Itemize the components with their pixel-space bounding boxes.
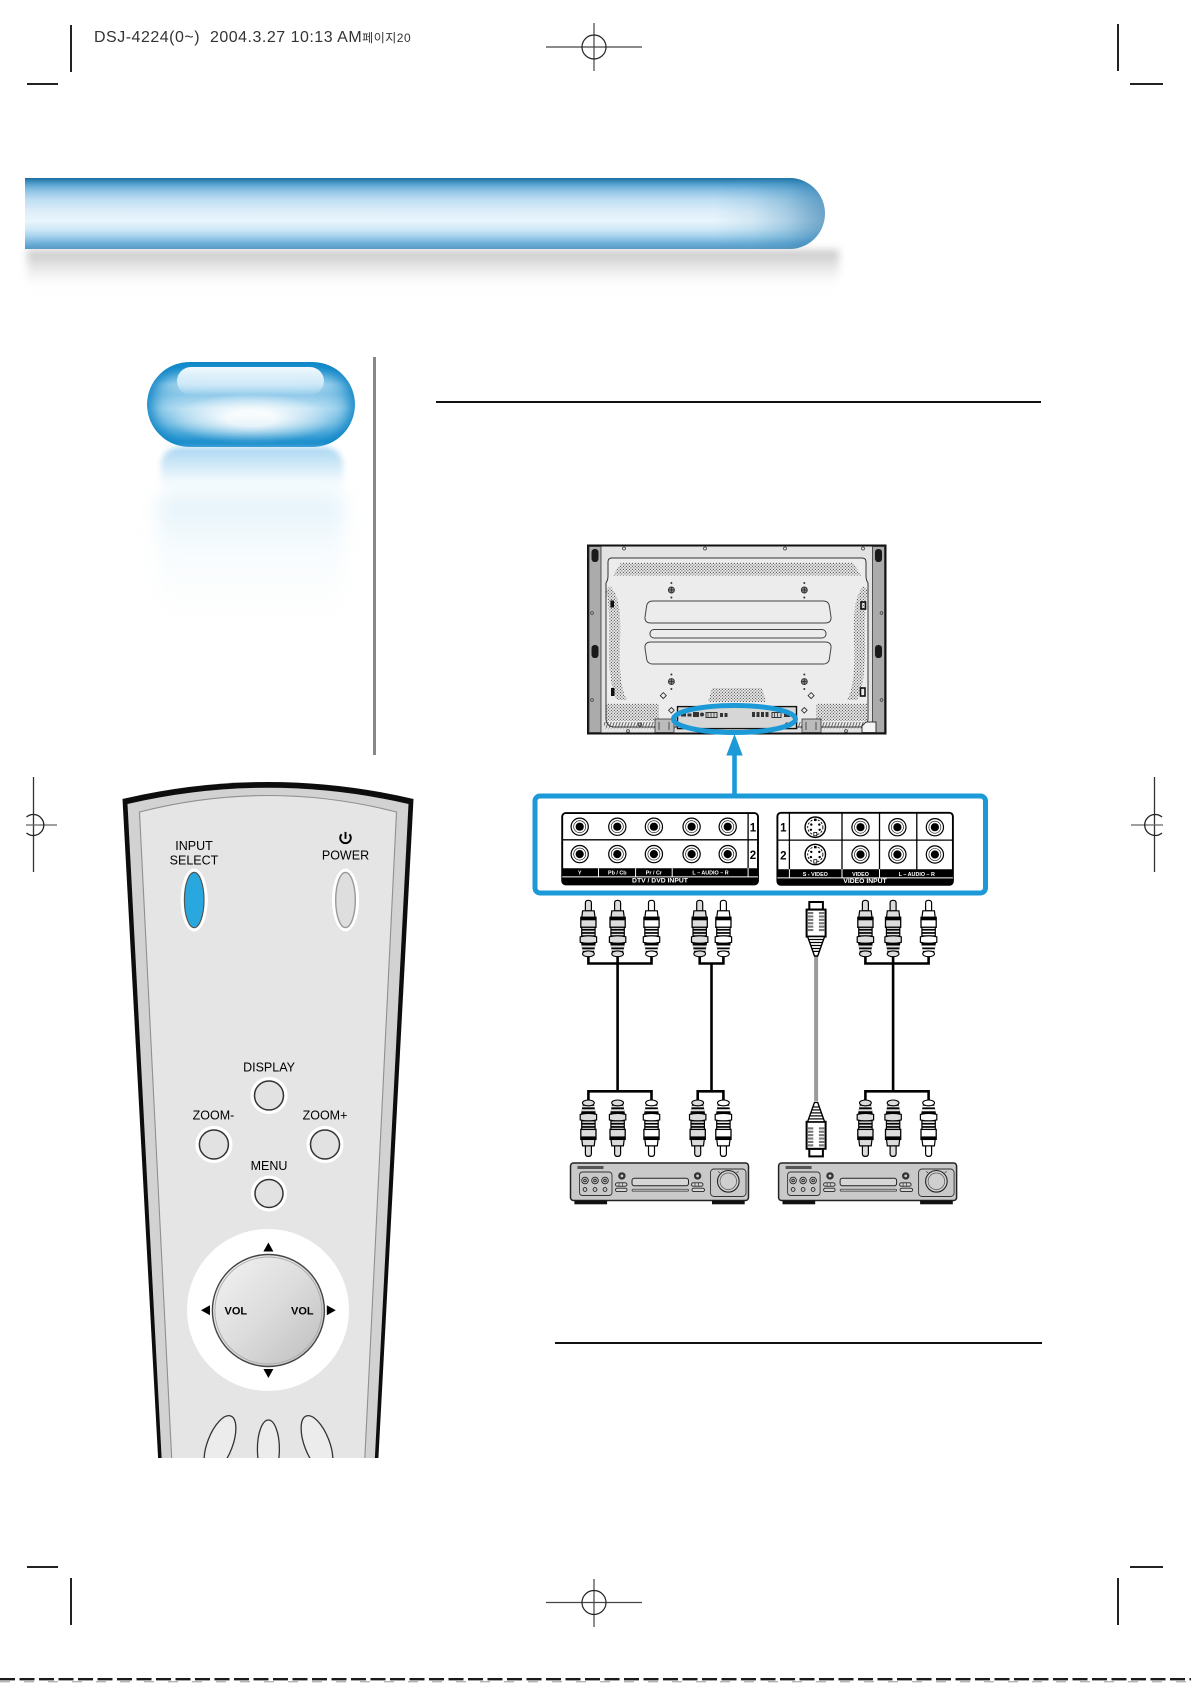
svg-text:Pr / Cr: Pr / Cr xyxy=(646,871,663,877)
svg-text:1: 1 xyxy=(750,823,757,835)
svg-text:VIDEO: VIDEO xyxy=(852,872,869,878)
svg-text:VOL: VOL xyxy=(291,1306,314,1318)
svg-text:VOL: VOL xyxy=(224,1306,247,1318)
svg-text:2: 2 xyxy=(750,850,756,862)
svg-text:2: 2 xyxy=(780,851,786,863)
svg-text:L – AUDIO – R: L – AUDIO – R xyxy=(692,871,728,877)
svg-text:ZOOM-: ZOOM- xyxy=(193,1109,235,1123)
svg-text:SELECT: SELECT xyxy=(170,854,219,868)
svg-text:Pb / Cb: Pb / Cb xyxy=(608,871,627,877)
svg-text:MENU: MENU xyxy=(251,1159,288,1173)
svg-text:S - VIDEO: S - VIDEO xyxy=(803,872,828,878)
svg-text:L – AUDIO – R: L – AUDIO – R xyxy=(899,872,935,878)
svg-text:1: 1 xyxy=(780,823,787,835)
svg-text:Y: Y xyxy=(578,871,582,877)
svg-text:DISPLAY: DISPLAY xyxy=(243,1061,296,1075)
svg-text:VIDEO INPUT: VIDEO INPUT xyxy=(843,878,887,885)
svg-text:DTV / DVD INPUT: DTV / DVD INPUT xyxy=(632,878,689,885)
svg-text:ZOOM+: ZOOM+ xyxy=(303,1109,348,1123)
svg-text:INPUT: INPUT xyxy=(175,839,213,853)
svg-text:POWER: POWER xyxy=(322,849,369,863)
